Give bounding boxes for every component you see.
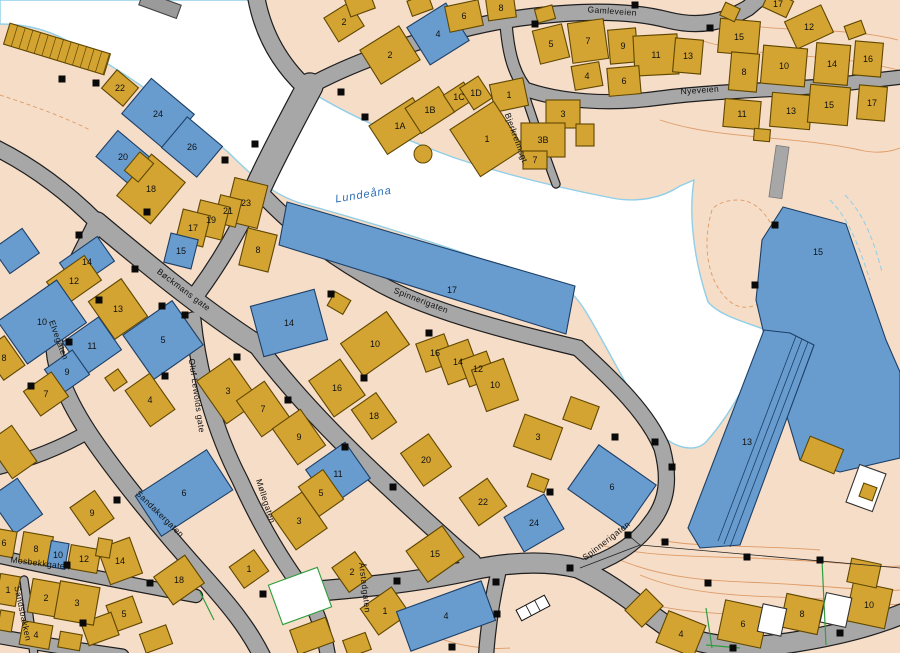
building-footprint (757, 604, 786, 636)
building-number: 12 (69, 276, 79, 286)
building-number: 14 (115, 556, 125, 566)
building (757, 604, 786, 636)
building-number: 3 (560, 109, 565, 119)
building-footprint (576, 124, 594, 146)
building-number: 16 (430, 348, 440, 358)
building-number: 7 (585, 36, 590, 46)
survey-marker (394, 578, 401, 585)
map-canvas[interactable]: 224685791113461712158101416111315171A1B1… (0, 0, 900, 653)
building-number: 15 (176, 246, 186, 256)
building-number: 2 (43, 593, 48, 603)
survey-marker (493, 579, 500, 586)
building-number: 11 (651, 50, 660, 60)
building-number: 15 (824, 100, 834, 110)
building-number: 14 (284, 318, 294, 328)
map-view: 224685791113461712158101416111315171A1B1… (0, 0, 900, 653)
building-number: 9 (296, 432, 301, 442)
survey-marker (662, 539, 669, 546)
survey-marker (114, 497, 121, 504)
building-number: 17 (867, 98, 877, 108)
building-number: 5 (160, 335, 165, 345)
survey-marker (547, 489, 554, 496)
survey-marker (837, 630, 844, 637)
survey-marker (744, 554, 751, 561)
building-number: 12 (473, 364, 483, 374)
building (58, 631, 82, 651)
building-number: 6 (740, 619, 745, 629)
building-number: 3 (225, 386, 230, 396)
building-number: 20 (118, 152, 128, 162)
building-number: 6 (621, 76, 626, 86)
survey-marker (817, 557, 824, 564)
building-number: 8 (498, 3, 503, 13)
building-number: 2 (387, 50, 392, 60)
building-number: 9 (64, 367, 69, 377)
building-number: 13 (742, 437, 752, 447)
building-number: 17 (773, 0, 783, 9)
building-number: 5 (121, 609, 126, 619)
building-number: 1C (453, 92, 465, 102)
building-footprint (96, 538, 113, 558)
survey-marker (705, 580, 712, 587)
building-number: 10 (53, 550, 63, 560)
building-number: 1 (382, 606, 387, 616)
building-number: 7 (532, 155, 537, 165)
building-number: 3 (535, 432, 540, 442)
building-number: 24 (529, 518, 539, 528)
building-number: 1 (5, 585, 10, 595)
building-number: 11 (737, 109, 746, 119)
building-number: 8 (255, 245, 260, 255)
survey-marker (772, 222, 779, 229)
building-number: 14 (453, 357, 463, 367)
building (96, 538, 113, 558)
survey-marker (328, 291, 335, 298)
survey-marker (182, 312, 189, 319)
survey-marker (390, 484, 397, 491)
building-number: 4 (435, 29, 440, 39)
survey-marker (260, 591, 267, 598)
building-footprint (58, 631, 82, 651)
survey-marker (752, 282, 759, 289)
survey-marker (147, 580, 154, 587)
building-number: 8 (799, 609, 804, 619)
survey-marker (532, 21, 539, 28)
survey-marker (625, 532, 632, 539)
building-number: 8 (741, 67, 746, 77)
building-number: 19 (206, 215, 216, 225)
survey-marker (730, 645, 737, 652)
building-number: 8 (1, 353, 6, 363)
building-number: 14 (82, 257, 92, 267)
survey-marker (426, 330, 433, 337)
building-number: 6 (181, 488, 186, 498)
building-number: 10 (37, 317, 47, 327)
building-number: 23 (241, 198, 251, 208)
building-number: 3B (537, 135, 548, 145)
building-footprint (754, 128, 771, 141)
survey-marker (652, 439, 659, 446)
building-number: 11 (333, 469, 342, 479)
building-number: 4 (584, 71, 589, 81)
survey-marker (449, 644, 456, 651)
survey-marker (28, 383, 35, 390)
building-number: 18 (369, 411, 379, 421)
survey-marker (222, 157, 229, 164)
building-number: 4 (443, 611, 448, 621)
building-number: 12 (79, 554, 89, 564)
building-number: 14 (827, 59, 837, 69)
building-number: 8 (33, 544, 38, 554)
building-number: 22 (478, 497, 488, 507)
building-number: 6 (461, 11, 466, 21)
building (754, 128, 771, 141)
building-number: 18 (146, 184, 156, 194)
building-number: 11 (87, 341, 96, 351)
survey-marker (80, 620, 87, 627)
building-number: 13 (113, 304, 123, 314)
building-number: 26 (187, 142, 197, 152)
building-number: 1D (470, 88, 482, 98)
building-number: 1 (506, 90, 511, 100)
building-number: 16 (863, 54, 873, 64)
building-number: 2 (349, 567, 354, 577)
survey-marker (285, 397, 292, 404)
survey-marker (132, 266, 139, 273)
building-number: 10 (370, 339, 380, 349)
building-number: 1B (424, 105, 435, 115)
building-number: 1 (484, 134, 489, 144)
survey-marker (567, 565, 574, 572)
building-number: 4 (147, 395, 152, 405)
building-number: 1A (394, 121, 405, 131)
building-number: 18 (174, 575, 184, 585)
building-number: 13 (683, 51, 693, 61)
building-number: 1 (246, 564, 251, 574)
tree-symbol (414, 145, 432, 163)
building-number: 5 (548, 39, 553, 49)
building-number: 10 (864, 600, 874, 610)
survey-marker (669, 464, 676, 471)
survey-marker (612, 434, 619, 441)
building (576, 124, 594, 146)
building-number: 17 (447, 285, 457, 295)
survey-marker (342, 444, 349, 451)
building-number: 4 (678, 629, 683, 639)
building-number: 17 (188, 223, 198, 233)
survey-marker (707, 25, 714, 32)
building-number: 3 (296, 516, 301, 526)
survey-marker (59, 76, 66, 83)
building-number: 13 (786, 106, 796, 116)
building-number: 21 (223, 206, 233, 216)
survey-marker (144, 209, 151, 216)
building-number: 7 (43, 389, 48, 399)
building-number: 15 (430, 549, 440, 559)
building-number: 9 (620, 41, 625, 51)
survey-marker (234, 354, 241, 361)
building-number: 15 (734, 32, 744, 42)
building-number: 10 (490, 380, 500, 390)
survey-marker (96, 297, 103, 304)
survey-marker (162, 373, 169, 380)
survey-marker (361, 375, 368, 382)
building-number: 24 (153, 109, 163, 119)
survey-marker (362, 114, 369, 121)
survey-marker (76, 232, 83, 239)
building-number: 7 (260, 404, 265, 414)
survey-marker (494, 611, 501, 618)
building-number: 6 (609, 482, 614, 492)
building-number: 15 (813, 247, 823, 257)
building-number: 22 (115, 83, 125, 93)
building-number: 10 (779, 61, 789, 71)
survey-marker (252, 141, 259, 148)
building-number: 12 (804, 22, 814, 32)
building-number: 6 (1, 538, 6, 548)
survey-marker (338, 89, 345, 96)
building-number: 16 (332, 383, 342, 393)
building-number: 5 (318, 488, 323, 498)
building-number: 2 (341, 17, 346, 27)
building-number: 3 (74, 598, 79, 608)
building-number: 9 (89, 508, 94, 518)
survey-marker (93, 80, 100, 87)
survey-marker (159, 303, 166, 310)
building-number: 20 (421, 455, 431, 465)
